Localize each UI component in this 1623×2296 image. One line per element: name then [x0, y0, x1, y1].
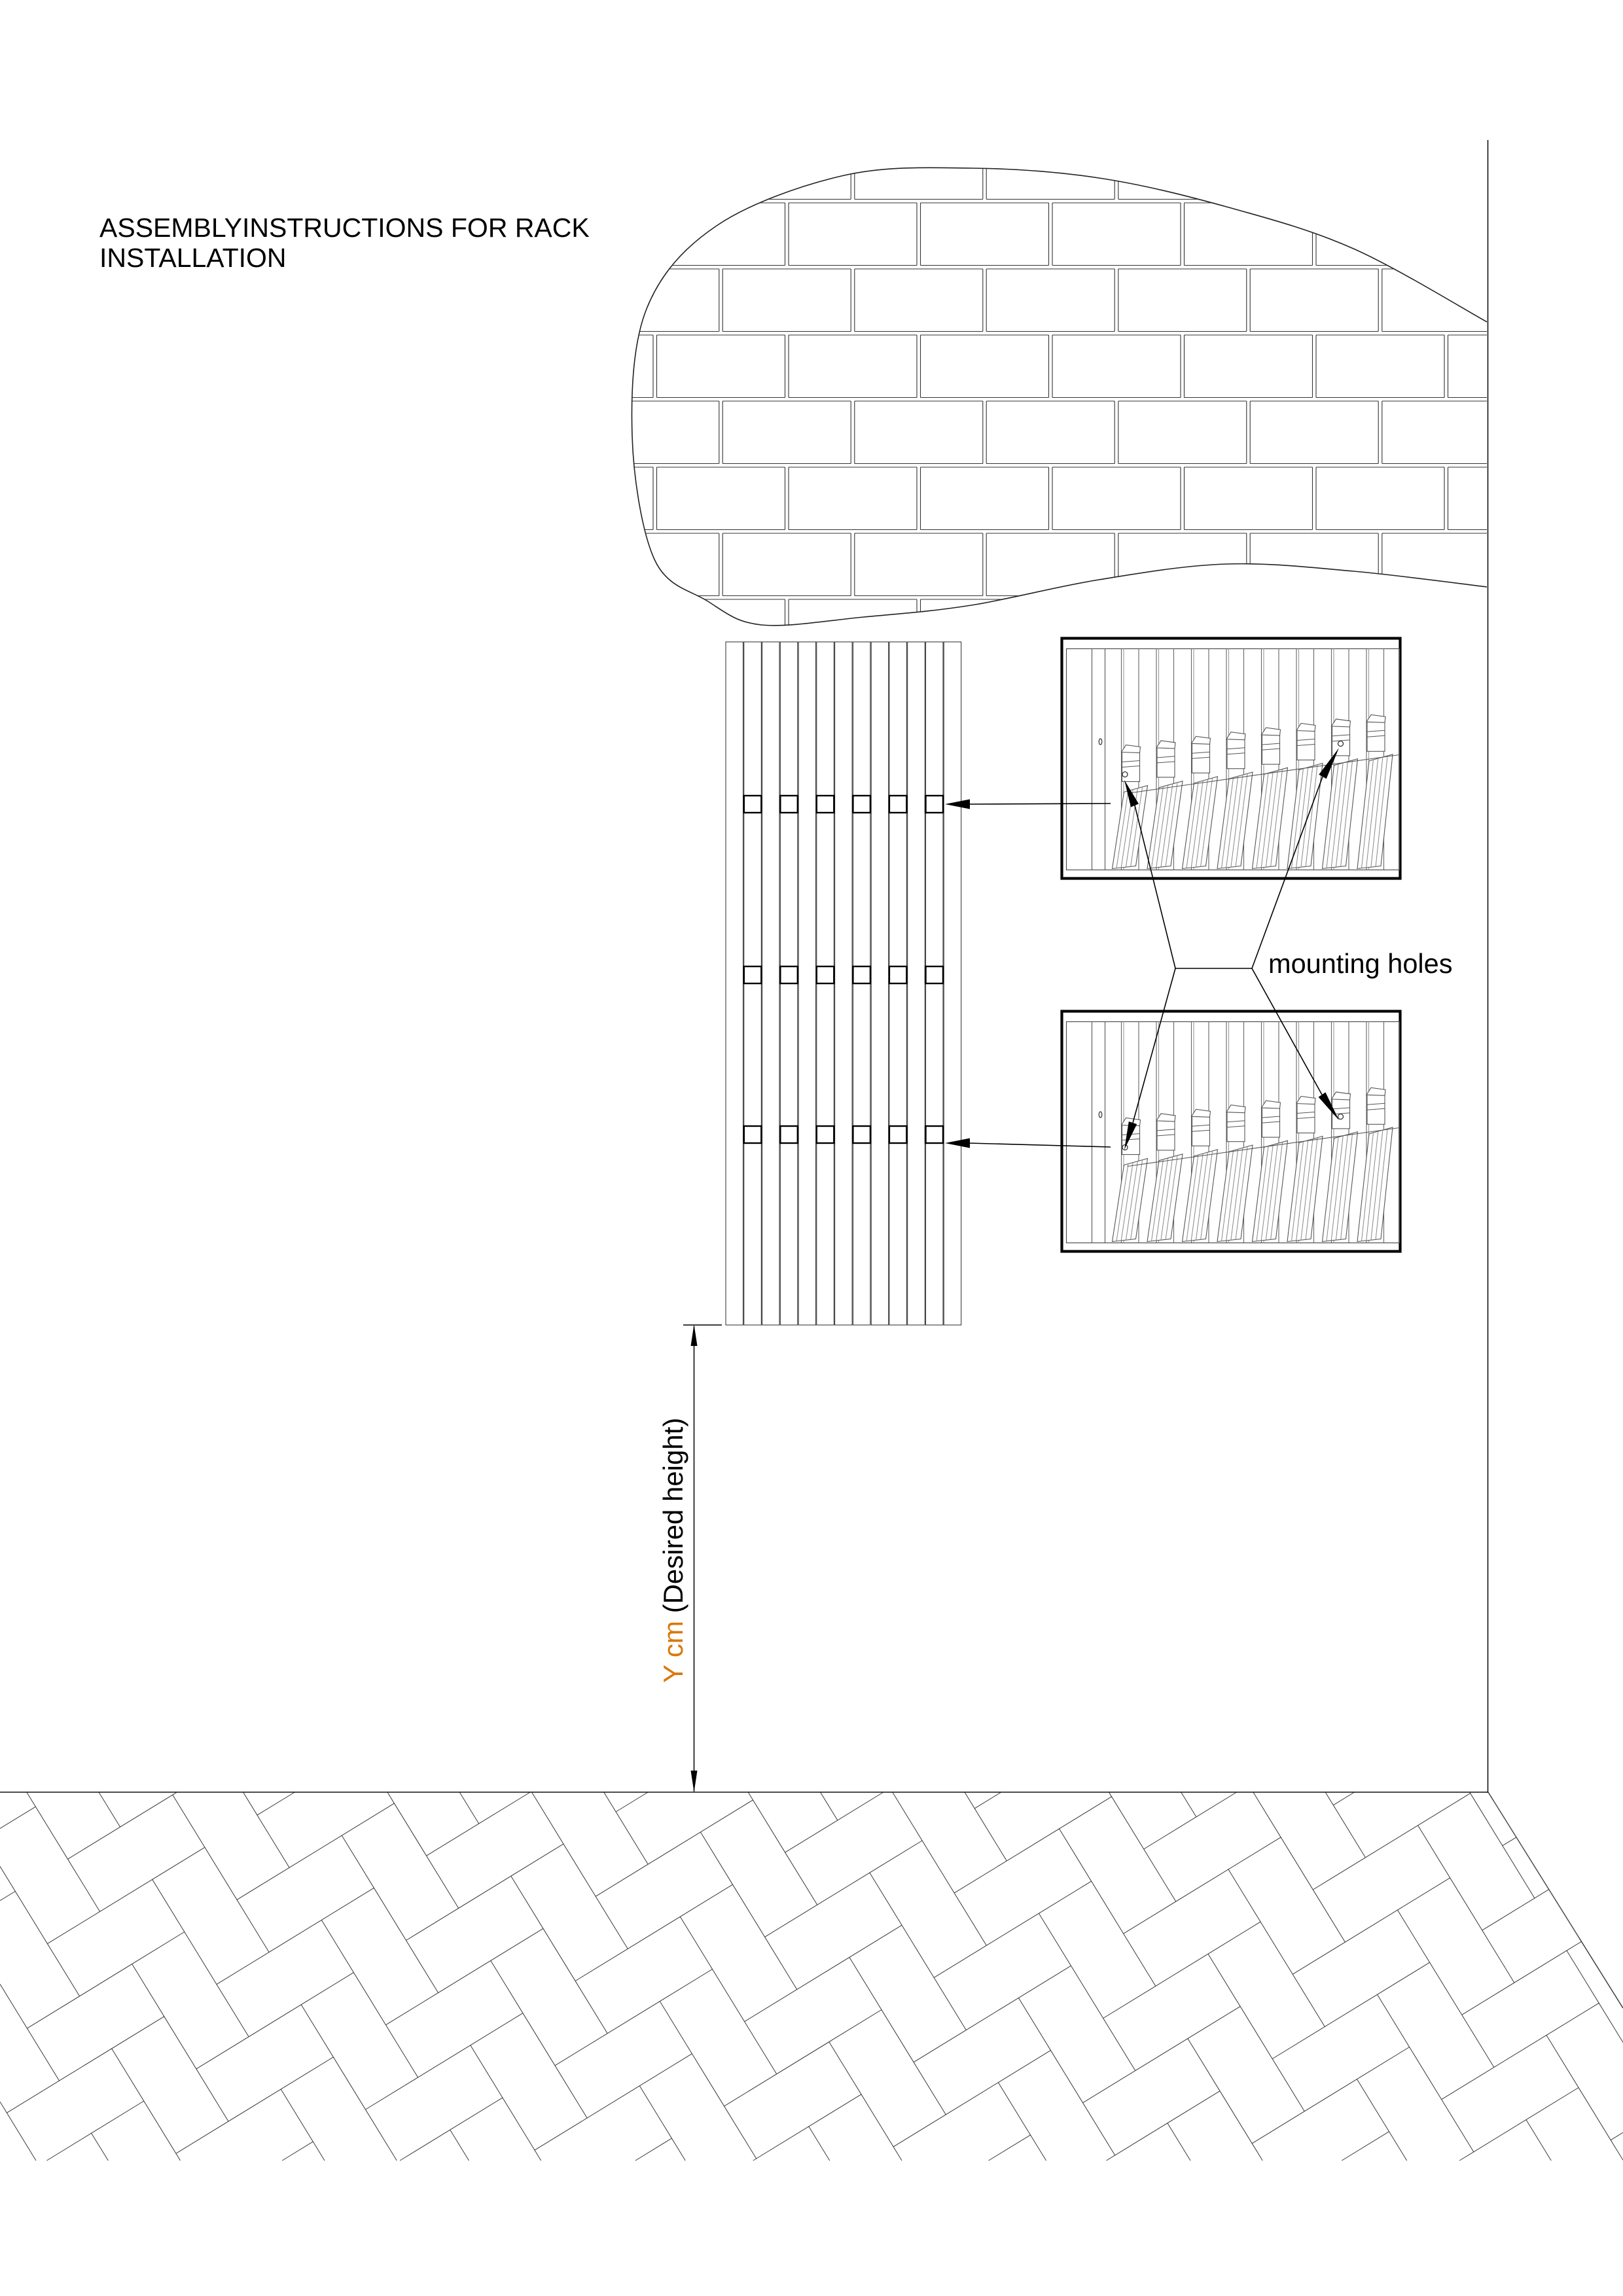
svg-text:mounting holes: mounting holes [1268, 948, 1452, 979]
svg-text:Y cm (Desired height): Y cm (Desired height) [658, 1418, 688, 1683]
svg-text:ASSEMBLYINSTRUCTIONS FOR RACK: ASSEMBLYINSTRUCTIONS FOR RACK [99, 213, 590, 243]
svg-text:INSTALLATION: INSTALLATION [99, 243, 287, 273]
